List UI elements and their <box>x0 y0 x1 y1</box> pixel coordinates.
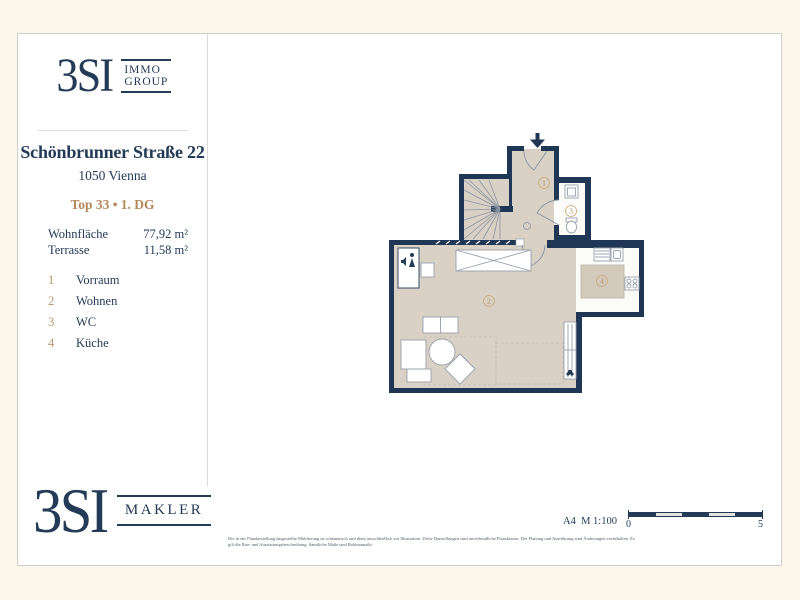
legend-name: Küche <box>76 333 109 354</box>
legend-number: 4 <box>48 333 76 354</box>
company-logo: 3SI IMMO GROUP <box>18 56 207 97</box>
floor-plan: 1 2 3 4 <box>389 133 659 395</box>
dish-drainer <box>594 248 610 261</box>
legend-item: 3 WC <box>48 312 120 333</box>
svg-text:4: 4 <box>600 277 604 286</box>
format-and-scale: A4 M 1:100 <box>563 516 617 527</box>
unit-designation: Top 33 • 1. DG <box>18 197 207 213</box>
legend-number: 3 <box>48 312 76 333</box>
stove <box>625 277 639 290</box>
side-table <box>421 263 434 277</box>
round-table <box>429 339 455 365</box>
area-value: 11,58 m² <box>144 242 188 258</box>
legend-name: Wohnen <box>76 291 117 312</box>
broker-logo: 3SI MAKLER <box>33 482 211 540</box>
legend-item: 4 Küche <box>48 333 120 354</box>
logo-line1: IMMO <box>124 64 161 76</box>
wardrobe <box>398 248 419 288</box>
scale-bar <box>628 512 763 517</box>
entry-arrow-icon <box>530 133 545 148</box>
area-table: Wohnfläche 77,92 m² Terrasse 11,58 m² <box>48 226 188 258</box>
floorplan-sheet: { "colors": { "navy": "#243b57", "wall_n… <box>0 0 800 600</box>
door-threshold <box>516 239 524 246</box>
logo-line2: GROUP <box>124 76 168 88</box>
logo-suffix-box: MAKLER <box>117 495 211 526</box>
toilet <box>567 221 577 233</box>
room-legend: 1 Vorraum 2 Wohnen 3 WC 4 Küche <box>48 270 120 354</box>
area-value: 77,92 m² <box>143 226 188 242</box>
scale-start-label: 0 <box>626 519 631 530</box>
sectional-sofa <box>401 340 426 369</box>
person-icon <box>410 253 414 257</box>
logo-brand-text: 3SI <box>33 482 107 540</box>
svg-text:2: 2 <box>487 297 491 306</box>
area-row: Terrasse 11,58 m² <box>48 242 188 258</box>
svg-text:3: 3 <box>569 207 573 216</box>
project-address: Schönbrunner Straße 22 <box>18 142 207 163</box>
logo-divider <box>38 130 188 131</box>
legend-name: WC <box>76 312 96 333</box>
scale-end-label: 5 <box>758 519 763 530</box>
svg-text:1: 1 <box>542 179 546 188</box>
area-row: Wohnfläche 77,92 m² <box>48 226 188 242</box>
column-divider <box>207 34 208 486</box>
area-label: Wohnfläche <box>48 226 108 242</box>
disclaimer-text: Die in der Plandarstellung dargestellte … <box>228 536 648 547</box>
area-label: Terrasse <box>48 242 89 258</box>
logo-suffix-box: IMMO GROUP <box>121 59 171 93</box>
legend-item: 1 Vorraum <box>48 270 120 291</box>
legend-name: Vorraum <box>76 270 120 291</box>
legend-number: 2 <box>48 291 76 312</box>
sectional-sofa <box>407 369 431 382</box>
project-city: 1050 Vienna <box>18 168 207 184</box>
logo-brand-text: 3SI <box>56 56 112 97</box>
document-page: 3SI IMMO GROUP Schönbrunner Straße 22 10… <box>17 33 782 566</box>
legend-number: 1 <box>48 270 76 291</box>
legend-item: 2 Wohnen <box>48 291 120 312</box>
